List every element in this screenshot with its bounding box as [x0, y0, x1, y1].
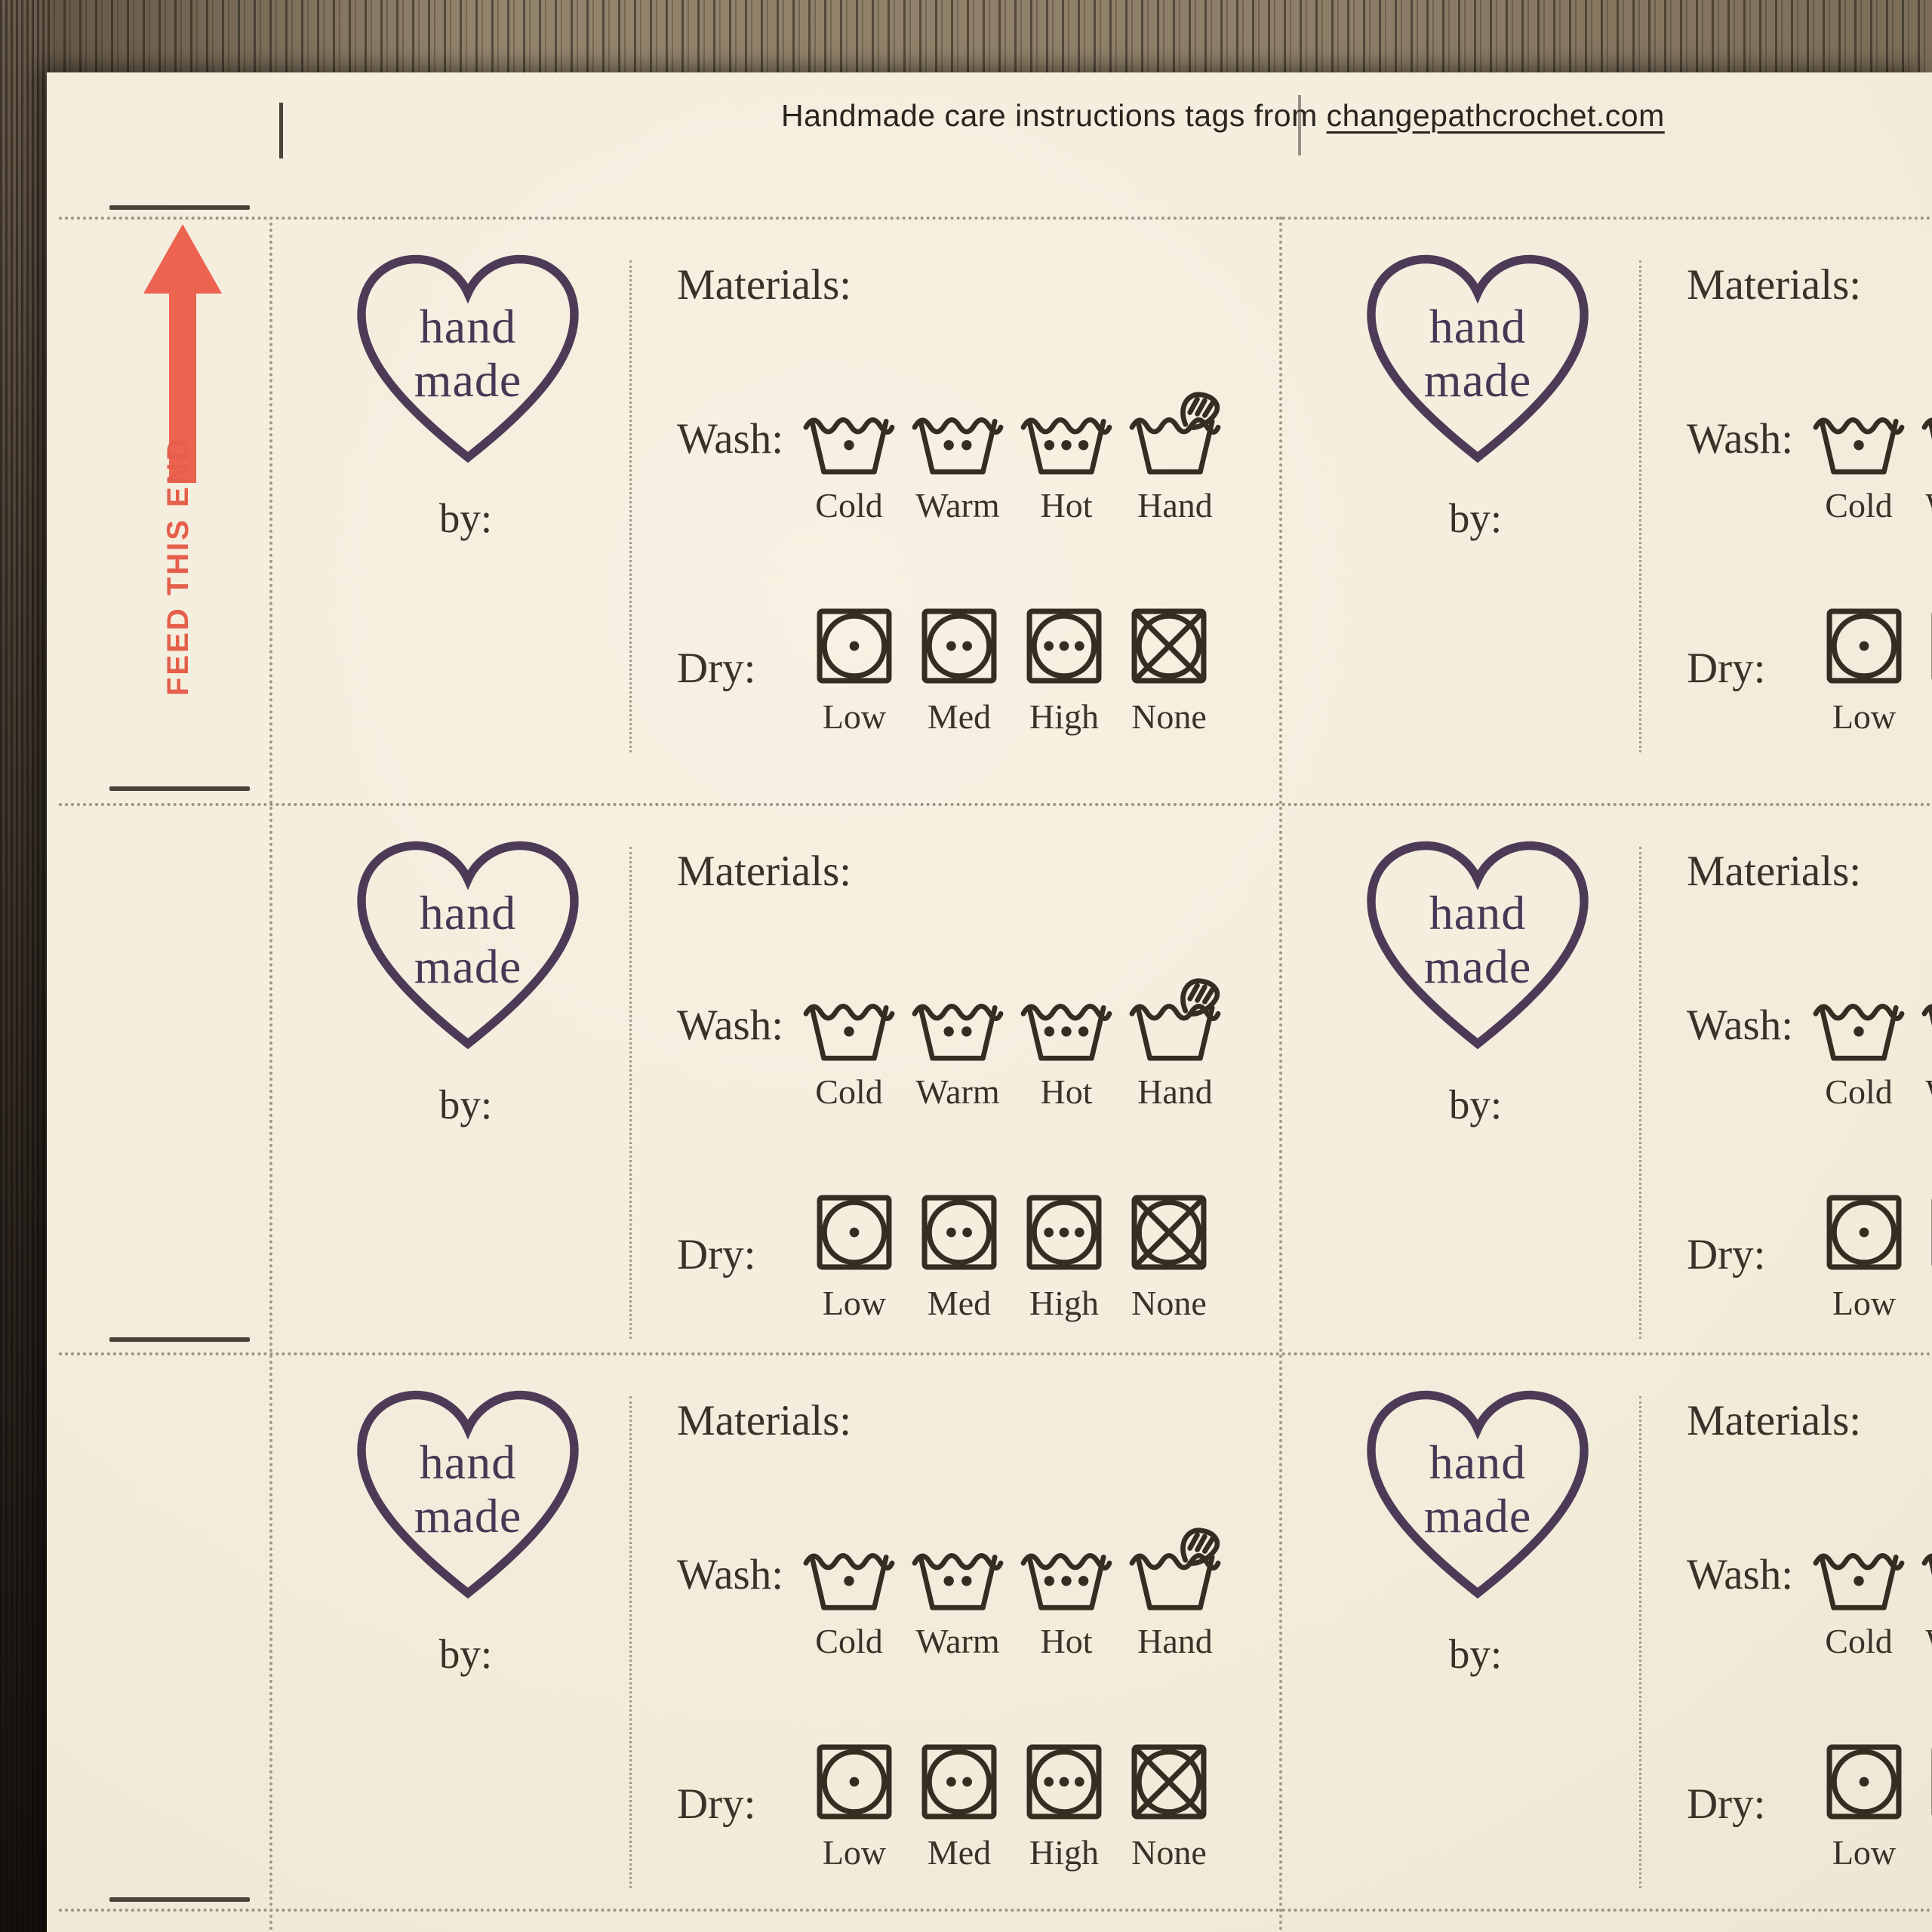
registration-line — [109, 205, 250, 210]
dry-option-label: Med — [928, 1832, 991, 1872]
dry-options: Low Med High None — [1824, 606, 1932, 737]
wash-option-cold: Cold — [801, 389, 897, 525]
wash-options: Cold Warm Hot Hand — [801, 389, 1223, 525]
dry-option-label: Low — [1832, 1283, 1896, 1323]
wash-label: Wash: — [677, 1550, 783, 1599]
dry-label: Dry: — [677, 1780, 755, 1829]
washtub-1-dot-icon — [1811, 975, 1906, 1067]
dry-options: Low Med High None — [814, 606, 1209, 737]
feed-arrow-icon — [143, 224, 222, 294]
tumble-dry-2-dots-icon — [1929, 606, 1932, 686]
registration-line — [109, 786, 250, 791]
dry-option-label: High — [1029, 1832, 1099, 1872]
tag-divider — [1639, 847, 1641, 1339]
materials-label: Materials: — [1687, 260, 1861, 309]
dry-option-med: Med — [1929, 1192, 1932, 1323]
dry-option-label: Low — [823, 1832, 886, 1872]
wash-option-label: Cold — [815, 1621, 882, 1661]
tumble-dry-3-dots-icon — [1024, 1192, 1104, 1272]
washtub-1-dot-icon — [801, 975, 897, 1067]
dry-option-med: Med — [919, 1742, 999, 1872]
washtub-2-dots-icon — [1920, 389, 1932, 481]
heart-text: hand made — [1353, 268, 1602, 438]
materials-label: Materials: — [1687, 1396, 1861, 1445]
tumble-dry-2-dots-icon — [1929, 1742, 1932, 1822]
tag-divider — [629, 260, 632, 752]
wash-label: Wash: — [677, 1001, 783, 1050]
photo-of-care-tag-sheet: Handmade care instructions tags from cha… — [0, 0, 1932, 1932]
dry-option-label: Low — [823, 697, 886, 737]
wash-option-label: Cold — [1825, 1072, 1892, 1112]
washtub-2-dots-icon — [910, 1524, 1005, 1617]
wash-options: Cold Warm Hot Hand — [1811, 389, 1932, 525]
heart-word-hand: hand — [1429, 300, 1526, 352]
dry-option-high: High — [1024, 1742, 1104, 1872]
registration-line — [109, 1897, 250, 1902]
wash-option-label: Hot — [1041, 1072, 1093, 1112]
wash-label: Wash: — [1687, 1001, 1793, 1050]
care-tag: hand made by: Materials: Wash: Cold Warm… — [269, 217, 1279, 803]
heart-word-hand: hand — [1429, 1436, 1526, 1488]
hand-wash-icon — [1128, 975, 1223, 1067]
handmade-heart-stamp: hand made — [1353, 1383, 1602, 1609]
by-label: by: — [383, 1630, 549, 1678]
tumble-dry-1-dot-icon — [814, 1192, 894, 1272]
tag-divider — [629, 1396, 632, 1888]
wash-option-label: Warm — [1925, 1072, 1932, 1112]
dry-option-none: None — [1129, 1192, 1209, 1323]
wash-option-label: Hand — [1137, 485, 1213, 525]
tumble-dry-2-dots-icon — [919, 606, 999, 686]
wash-option-label: Warm — [915, 1621, 999, 1661]
materials-label: Materials: — [1687, 847, 1861, 896]
wash-option-label: Warm — [915, 485, 999, 525]
wash-option-label: Cold — [815, 485, 882, 525]
heart-word-made: made — [1424, 1490, 1532, 1542]
wash-option-label: Hot — [1041, 485, 1093, 525]
dry-option-low: Low — [814, 606, 894, 737]
wash-option-warm: Warm — [1920, 975, 1932, 1112]
dry-option-med: Med — [1929, 1742, 1932, 1872]
dry-option-high: High — [1024, 1192, 1104, 1323]
dry-label: Dry: — [677, 644, 755, 693]
wash-option-warm: Warm — [910, 975, 1005, 1112]
heart-word-hand: hand — [420, 300, 516, 352]
wash-label: Wash: — [677, 414, 783, 463]
dry-option-low: Low — [814, 1192, 894, 1323]
tumble-dry-1-dot-icon — [814, 606, 894, 686]
dry-options: Low Med High None — [1824, 1192, 1932, 1323]
by-label: by: — [383, 1081, 549, 1128]
dry-option-label: None — [1131, 1832, 1207, 1872]
tumble-dry-2-dots-icon — [919, 1742, 999, 1822]
tag-divider — [629, 847, 632, 1339]
registration-line — [109, 1337, 250, 1342]
wash-option-warm: Warm — [1920, 1524, 1932, 1661]
registration-tick — [1298, 95, 1301, 155]
header-text: Handmade care instructions tags from — [781, 98, 1327, 133]
no-tumble-dry-icon — [1129, 606, 1209, 686]
heart-word-made: made — [414, 940, 522, 992]
tag-grid: hand made by: Materials: Wash: Cold Warm… — [269, 217, 1932, 1932]
handmade-heart-stamp: hand made — [343, 247, 592, 473]
dry-option-low: Low — [814, 1742, 894, 1872]
wash-option-hand: Hand — [1128, 389, 1223, 525]
wash-option-label: Warm — [915, 1072, 999, 1112]
heart-word-made: made — [414, 354, 522, 406]
handmade-heart-stamp: hand made — [343, 833, 592, 1060]
tumble-dry-1-dot-icon — [1824, 606, 1904, 686]
washtub-1-dot-icon — [1811, 389, 1906, 481]
tumble-dry-1-dot-icon — [1824, 1192, 1904, 1272]
hand-wash-icon — [1128, 1524, 1223, 1617]
washtub-2-dots-icon — [910, 389, 1005, 481]
care-tag: hand made by: Materials: Wash: Cold Warm… — [1279, 1352, 1932, 1909]
handmade-heart-stamp: hand made — [343, 1383, 592, 1609]
no-tumble-dry-icon — [1129, 1742, 1209, 1822]
heart-text: hand made — [343, 854, 592, 1025]
wash-option-warm: Warm — [1920, 389, 1932, 525]
sheet-header: Handmade care instructions tags from cha… — [781, 98, 1665, 134]
heart-word-hand: hand — [420, 887, 516, 939]
wash-option-label: Hand — [1137, 1621, 1213, 1661]
wash-options: Cold Warm Hot Hand — [801, 975, 1223, 1112]
dry-option-none: None — [1129, 1742, 1209, 1872]
washtub-1-dot-icon — [801, 1524, 897, 1617]
heart-text: hand made — [343, 1404, 592, 1574]
tumble-dry-2-dots-icon — [1929, 1192, 1932, 1272]
wash-option-warm: Warm — [910, 1524, 1005, 1661]
washtub-3-dots-icon — [1019, 975, 1114, 1067]
washtub-1-dot-icon — [801, 389, 897, 481]
dry-option-med: Med — [919, 1192, 999, 1323]
wash-option-cold: Cold — [801, 1524, 897, 1661]
tumble-dry-2-dots-icon — [919, 1192, 999, 1272]
heart-word-made: made — [1424, 354, 1532, 406]
wash-option-cold: Cold — [1811, 389, 1906, 525]
wash-options: Cold Warm Hot Hand — [1811, 975, 1932, 1112]
by-label: by: — [383, 494, 549, 542]
dry-option-med: Med — [919, 606, 999, 737]
tumble-dry-1-dot-icon — [1824, 1742, 1904, 1822]
wash-option-hand: Hand — [1128, 975, 1223, 1112]
tumble-dry-3-dots-icon — [1024, 1742, 1104, 1822]
wash-option-label: Cold — [1825, 1621, 1892, 1661]
registration-tick — [279, 103, 283, 158]
care-tag: hand made by: Materials: Wash: Cold Warm… — [1279, 217, 1932, 803]
wood-table-left — [0, 0, 50, 1932]
wash-options: Cold Warm Hot Hand — [801, 1524, 1223, 1661]
dry-option-label: Med — [928, 697, 991, 737]
dry-label: Dry: — [677, 1230, 755, 1279]
dry-options: Low Med High None — [814, 1192, 1209, 1323]
handmade-heart-stamp: hand made — [1353, 247, 1602, 473]
wash-option-warm: Warm — [910, 389, 1005, 525]
wash-option-hot: Hot — [1019, 1524, 1114, 1661]
wash-option-label: Hand — [1137, 1072, 1213, 1112]
wash-option-hot: Hot — [1019, 975, 1114, 1112]
care-tag: hand made by: Materials: Wash: Cold Warm… — [1279, 1909, 1932, 1932]
no-tumble-dry-icon — [1129, 1192, 1209, 1272]
dry-option-high: High — [1024, 606, 1104, 737]
by-label: by: — [1392, 494, 1558, 542]
dry-option-low: Low — [1824, 1742, 1904, 1872]
materials-label: Materials: — [677, 1396, 851, 1445]
washtub-1-dot-icon — [1811, 1524, 1906, 1617]
dry-option-label: High — [1029, 697, 1099, 737]
tag-divider — [1639, 260, 1641, 752]
washtub-2-dots-icon — [910, 975, 1005, 1067]
by-label: by: — [1392, 1630, 1558, 1678]
care-tag: hand made by: Materials: Wash: Cold Warm… — [269, 803, 1279, 1352]
handmade-heart-stamp: hand made — [1353, 833, 1602, 1060]
dry-option-label: Med — [928, 1283, 991, 1323]
materials-label: Materials: — [677, 847, 851, 896]
tumble-dry-1-dot-icon — [814, 1742, 894, 1822]
wash-option-label: Warm — [1925, 1621, 1932, 1661]
dry-label: Dry: — [1687, 1780, 1765, 1829]
dry-option-low: Low — [1824, 1192, 1904, 1323]
dry-options: Low Med High None — [1824, 1742, 1932, 1872]
wash-option-label: Cold — [815, 1072, 882, 1112]
dry-options: Low Med High None — [814, 1742, 1209, 1872]
heart-word-hand: hand — [1429, 887, 1526, 939]
dry-option-label: None — [1131, 1283, 1207, 1323]
wash-option-cold: Cold — [1811, 975, 1906, 1112]
washtub-2-dots-icon — [1920, 975, 1932, 1067]
wash-options: Cold Warm Hot Hand — [1811, 1524, 1932, 1661]
dry-option-low: Low — [1824, 606, 1904, 737]
dry-label: Dry: — [1687, 1230, 1765, 1279]
wash-option-hand: Hand — [1128, 1524, 1223, 1661]
materials-label: Materials: — [677, 260, 851, 309]
heart-word-made: made — [414, 1490, 522, 1542]
wash-option-cold: Cold — [801, 975, 897, 1112]
tag-divider — [1639, 1396, 1641, 1888]
hand-wash-icon — [1128, 389, 1223, 481]
wash-option-label: Hot — [1041, 1621, 1093, 1661]
dry-option-label: Low — [823, 1283, 886, 1323]
wash-option-label: Warm — [1925, 485, 1932, 525]
wash-option-hot: Hot — [1019, 389, 1114, 525]
dry-option-none: None — [1129, 606, 1209, 737]
wash-label: Wash: — [1687, 414, 1793, 463]
feed-this-end-label: FEED THIS END — [162, 469, 204, 696]
website-link-text: changepathcrochet.com — [1327, 98, 1665, 133]
dry-label: Dry: — [1687, 644, 1765, 693]
wash-option-label: Cold — [1825, 485, 1892, 525]
dry-option-label: None — [1131, 697, 1207, 737]
heart-word-hand: hand — [420, 1436, 516, 1488]
tumble-dry-3-dots-icon — [1024, 606, 1104, 686]
washtub-3-dots-icon — [1019, 389, 1114, 481]
dry-option-med: Med — [1929, 606, 1932, 737]
wash-label: Wash: — [1687, 1550, 1793, 1599]
heart-text: hand made — [1353, 854, 1602, 1025]
by-label: by: — [1392, 1081, 1558, 1128]
washtub-2-dots-icon — [1920, 1524, 1932, 1617]
dry-option-label: High — [1029, 1283, 1099, 1323]
washtub-3-dots-icon — [1019, 1524, 1114, 1617]
dry-option-label: Low — [1832, 1832, 1896, 1872]
care-tag: hand made by: Materials: Wash: Cold Warm… — [269, 1352, 1279, 1909]
heart-text: hand made — [1353, 1404, 1602, 1574]
care-tag: hand made by: Materials: Wash: Cold Warm… — [269, 1909, 1279, 1932]
heart-word-made: made — [1424, 940, 1532, 992]
heart-text: hand made — [343, 268, 592, 438]
care-tag: hand made by: Materials: Wash: Cold Warm… — [1279, 803, 1932, 1352]
wood-table-top — [0, 0, 1932, 75]
dry-option-label: Low — [1832, 697, 1896, 737]
wash-option-cold: Cold — [1811, 1524, 1906, 1661]
